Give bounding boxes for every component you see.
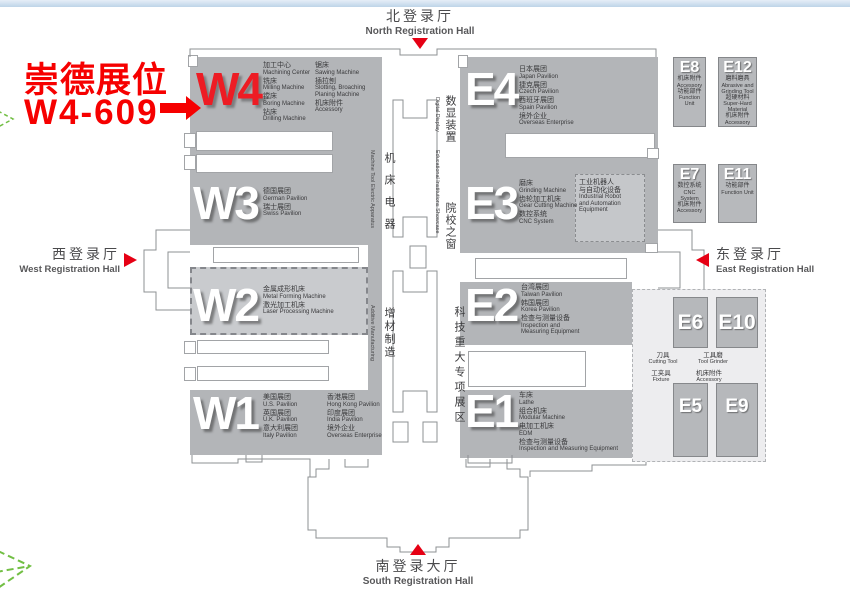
hall-e4-details: 日本展团Japan Pavilion捷克展团Czech Pavilion西班牙展… (519, 66, 574, 128)
hall-e11-label: E11 (719, 166, 756, 183)
hall-detail-item: 电加工机床EDM (519, 423, 618, 437)
hall-w2-details: 金属成形机床Metal Forming Machine激光加工机床Laser P… (263, 286, 334, 317)
south-hall-tabs (345, 459, 490, 467)
hall-e9: E9 (716, 383, 758, 457)
hall-detail-item: 齿轮加工机床Gear Cutting Machine (519, 196, 577, 210)
west-entrance-outline (144, 230, 190, 310)
hall-e9-label: E9 (725, 396, 748, 418)
hall-detail-item: 超硬材料Super-Hard Material (719, 95, 756, 114)
hall-e8: E8 机床附件Accessory功能部件Function Unit (673, 57, 706, 127)
hall-detail-item: 检查与测量设备Inspection and Measuring Equipmen… (521, 315, 579, 336)
hall-detail-item: 机床附件Accessory (674, 76, 705, 89)
annotation-arrow-icon (160, 103, 186, 113)
aisle (213, 247, 359, 263)
hall-detail-item: 英国展团U.K. Pavilion (263, 410, 298, 424)
booth-annotation-number: W4-609 (24, 93, 159, 133)
wall-notch (645, 243, 658, 253)
hall-e5-label: E5 (679, 396, 702, 418)
leaf-decoration-bottom-left (0, 551, 30, 588)
east-south-connector (468, 455, 646, 477)
hall-detail-item: 功能部件Function Unit (719, 183, 756, 196)
east-registration-label: 东登录厅 East Registration Hall (716, 244, 846, 275)
tool-label-tool-grinder: 工具磨Tool Grinder (688, 352, 738, 365)
hall-detail-item: 西班牙展团Spain Pavilion (519, 97, 574, 111)
west-arrow-icon (124, 253, 137, 267)
hall-detail-item: 加工中心Machining Center (263, 62, 310, 76)
hall-detail-item: 日本展团Japan Pavilion (519, 66, 574, 80)
hall-detail-item: 数控系统CNC System (674, 183, 705, 202)
zone-machine-tool-electric-en: Machine Tool Electric Apparatus (369, 150, 375, 228)
hall-detail-item: 检查与测量设备Inspection and Measuring Equipmen… (519, 439, 618, 453)
hall-detail-item: 锯床Sawing Machine (315, 62, 365, 76)
tool-label-accessory: 机床附件Accessory (682, 370, 736, 383)
hall-detail-item: 金属成形机床Metal Forming Machine (263, 286, 334, 300)
hall-e5: E5 (673, 383, 708, 457)
hall-detail-item: 捷克展团Czech Pavilion (519, 82, 574, 96)
hall-detail-item: 磨床Grinding Machine (519, 180, 577, 194)
north-wall-outline (190, 49, 656, 57)
zone-educational-zh: 院校之窗 (442, 202, 458, 250)
hall-w3-details: 德国展团German Pavilion瑞士展团Swiss Pavilion (263, 188, 307, 219)
south-arrow-icon (410, 544, 426, 555)
north-corridor-outline (393, 100, 437, 237)
hall-w1-label: W1 (193, 390, 258, 436)
zone-digital-display-en: Digital Display (434, 97, 440, 132)
aisle (196, 131, 333, 151)
hall-detail-item: 磨料磨具Abrasive and Grinding Tool (719, 76, 756, 95)
hall-e7: E7 数控系统CNC System机床附件Accessory (673, 164, 706, 223)
zone-machine-tool-electric-zh: 机床电器 (381, 152, 397, 240)
hall-e2-details: 台湾展团Taiwan Pavilion韩国展团Korea Pavilion检查与… (521, 284, 579, 337)
hall-w4-details-col1: 加工中心Machining Center铣床Milling Machine镗床B… (263, 62, 310, 124)
south-corridor-outline (393, 271, 437, 412)
hall-detail-item: 功能部件Function Unit (674, 89, 705, 108)
hall-w4-label: W4 (196, 66, 261, 112)
hall-detail-item: 台湾展团Taiwan Pavilion (521, 284, 579, 298)
hall-w4-details-col2: 锯床Sawing Machine插拉刨Slotting, Broaching P… (315, 62, 365, 115)
hall-detail-item: 激光加工机床Laser Processing Machine (263, 302, 334, 316)
top-bar (0, 0, 850, 7)
hall-e4-label: E4 (465, 66, 517, 112)
industrial-robot-zone-text: 工业机器人 与自动化设备 Industrial Robot and Automa… (579, 179, 621, 215)
hall-detail-item: 组合机床Modular Machine (519, 408, 618, 422)
hall-e6-label: E6 (678, 311, 704, 335)
aisle (505, 133, 655, 158)
hall-e10: E10 (716, 297, 758, 348)
zone-additive-zh: 增材制造 (381, 307, 397, 359)
hall-detail-item: 数控系统CNC System (519, 211, 577, 225)
wall-notch (184, 155, 196, 170)
hall-detail-item: 镗床Boring Machine (263, 93, 310, 107)
hall-detail-item: 意大利展团Italy Pavilion (263, 425, 298, 439)
hall-e2-label: E2 (465, 282, 517, 328)
hall-e8-label: E8 (674, 59, 705, 76)
wall-notch (647, 148, 659, 159)
aisle (196, 154, 333, 173)
hall-e1-details: 车床Lathe组合机床Modular Machine电加工机床EDM检查与测量设… (519, 392, 618, 454)
wall-notch (184, 367, 196, 381)
west-registration-label: 西登录厅 West Registration Hall (5, 244, 120, 275)
hall-detail-item: 机床附件Accessory (719, 113, 756, 126)
north-registration-label: 北登录厅 North Registration Hall (355, 6, 485, 37)
hall-detail-item: 瑞士展团Swiss Pavilion (263, 204, 307, 218)
aisle (468, 351, 586, 387)
north-arrow-icon (412, 38, 428, 49)
tool-label-fixture: 工夹具Fixture (636, 370, 686, 383)
south-registration-label: 南登录大厅 South Registration Hall (348, 556, 488, 587)
wall-notch (184, 341, 196, 354)
east-arrow-icon (696, 253, 709, 267)
hall-e1-label: E1 (465, 388, 517, 434)
hall-detail-item: 德国展团German Pavilion (263, 188, 307, 202)
hall-detail-item: 境外企业Overseas Enterprise (327, 425, 382, 439)
annotation-arrow-head-icon (186, 96, 201, 120)
hall-w3-label: W3 (193, 180, 258, 226)
hall-detail-item: 印度展团India Pavilion (327, 410, 382, 424)
hall-detail-item: 车床Lathe (519, 392, 618, 406)
hall-detail-item: 铣床Milling Machine (263, 78, 310, 92)
tool-label-cutting-tool: 刀具Cutting Tool (638, 352, 688, 365)
hall-detail-item: 美国展团U.S. Pavilion (263, 394, 298, 408)
aisle (197, 340, 329, 354)
zone-additive-en: Additive Manufacturing (369, 305, 375, 361)
zone-educational-en: Educational Institutions Showcase (434, 150, 440, 233)
zone-digital-display-zh: 数显装置 (442, 95, 458, 143)
hall-w2-label: W2 (193, 282, 258, 328)
corridor-mid-block (410, 246, 426, 268)
hall-detail-item: 钻床Drilling Machine (263, 109, 310, 123)
wall-notch (184, 133, 196, 148)
hall-detail-item: 机床附件Accessory (315, 100, 365, 114)
hall-e3-details: 磨床Grinding Machine齿轮加工机床Gear Cutting Mac… (519, 180, 577, 227)
hall-detail-item: 机床附件Accessory (674, 202, 705, 215)
hall-w1-details-col2: 香港展团Hong Kong Pavilion印度展团India Pavilion… (327, 394, 382, 441)
aisle (475, 258, 627, 279)
hall-detail-item: 韩国展团Korea Pavilion (521, 300, 579, 314)
zone-science-major-zh: 科技重大专项展区 (451, 306, 467, 426)
hall-e11: E11 功能部件Function Unit (718, 164, 757, 223)
hall-e7-label: E7 (674, 166, 705, 183)
hall-detail-item: 境外企业Overseas Enterprise (519, 113, 574, 127)
hall-detail-item: 香港展团Hong Kong Pavilion (327, 394, 382, 408)
south-hall-outline (308, 459, 528, 552)
hall-e10-label: E10 (718, 311, 755, 335)
hall-e12-label: E12 (719, 59, 756, 76)
hall-e3-label: E3 (465, 180, 517, 226)
west-south-connector (192, 455, 310, 477)
hall-e6: E6 (673, 297, 708, 348)
hall-w1-details-col1: 美国展团U.S. Pavilion英国展团U.K. Pavilion意大利展团I… (263, 394, 298, 441)
corridor-south-block-1 (393, 422, 408, 442)
corridor-south-block-2 (423, 422, 437, 442)
hall-detail-item: 插拉刨Slotting, Broaching Planing Machine (315, 78, 365, 99)
hall-e12: E12 磨料磨具Abrasive and Grinding Tool超硬材料Su… (718, 57, 757, 127)
aisle (197, 366, 329, 381)
floor-plan: E6 E10 E5 E9 刀具Cutting Tool 工具磨Tool Grin… (0, 0, 850, 592)
leaf-decoration-top-left (0, 111, 13, 127)
